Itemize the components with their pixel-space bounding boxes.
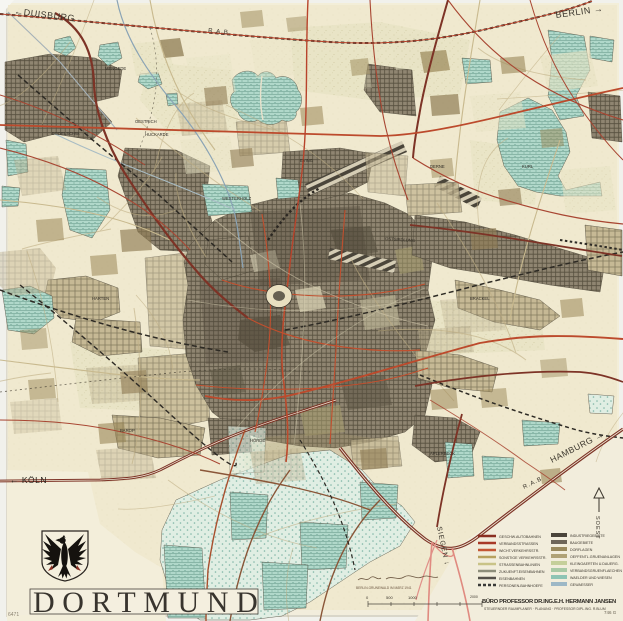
svg-text:APLERBECK: APLERBECK	[430, 451, 455, 456]
svg-text:WAELDER UND WIESEN: WAELDER UND WIESEN	[570, 576, 612, 580]
svg-text:KLEINGAERTEN U.DAUERG.: KLEINGAERTEN U.DAUERG.	[570, 562, 619, 566]
svg-text:HUCKARDE: HUCKARDE	[145, 132, 169, 137]
svg-text:← KÖLN: ← KÖLN	[10, 475, 47, 485]
svg-text:BAROP: BAROP	[120, 428, 135, 433]
svg-text:OESTRICH: OESTRICH	[135, 119, 157, 124]
svg-text:BODELSCHW.: BODELSCHW.	[52, 131, 80, 136]
svg-text:ZUKUENFT.EISENBAHNEN: ZUKUENFT.EISENBAHNEN	[499, 570, 545, 574]
svg-text:PERSONEN-BAHNHOEFE: PERSONEN-BAHNHOEFE	[499, 584, 543, 588]
svg-text:KURL: KURL	[522, 164, 534, 169]
svg-text:2000: 2000	[470, 595, 478, 599]
svg-text:BERLIN-GRUNEWALD IM MÄRZ 1941: BERLIN-GRUNEWALD IM MÄRZ 1941	[356, 586, 412, 590]
svg-text:VERBANDSSTRASSEN: VERBANDSSTRASSEN	[499, 542, 539, 546]
svg-text:BRACKEL: BRACKEL	[470, 296, 490, 301]
svg-text:500: 500	[386, 595, 393, 600]
svg-text:HARTEN: HARTEN	[92, 296, 109, 301]
svg-text:VERBANDSGRUENFLAECHEN: VERBANDSGRUENFLAECHEN	[570, 569, 622, 573]
svg-text:EVING: EVING	[300, 158, 313, 163]
svg-text:SONSTIGE VERKEHRSSTR.: SONSTIGE VERKEHRSSTR.	[499, 556, 547, 560]
svg-text:MENGEDE: MENGEDE	[105, 66, 126, 71]
svg-text:GESCHW.AUTOBAHNEN: GESCHW.AUTOBAHNEN	[499, 535, 541, 539]
svg-text:WESTERHOLZ: WESTERHOLZ	[222, 196, 252, 201]
svg-text:STRASSENBAHNLINIEN: STRASSENBAHNLINIEN	[499, 563, 540, 567]
svg-text:OEFFENTL.GRUENANLAGEN: OEFFENTL.GRUENANLAGEN	[570, 555, 620, 559]
svg-text:BAUGEBIETE: BAUGEBIETE	[570, 541, 594, 545]
svg-text:DORFLAGEN: DORFLAGEN	[570, 548, 593, 552]
svg-text:INDUSTRIEGEBIETE: INDUSTRIEGEBIETE	[570, 534, 606, 538]
svg-text:DORTMUND: DORTMUND	[33, 586, 265, 619]
svg-text:1000: 1000	[408, 595, 418, 600]
svg-text:6471: 6471	[8, 612, 19, 618]
svg-text:HÖRDE: HÖRDE	[250, 438, 265, 443]
svg-text:DERNE: DERNE	[430, 164, 445, 169]
svg-text:STEUERNDER RAUMPLANER · PLANUN: STEUERNDER RAUMPLANER · PLANUNG · PROFES…	[484, 607, 606, 611]
svg-text:746 G: 746 G	[604, 610, 617, 615]
svg-text:EISENBAHNEN: EISENBAHNEN	[499, 577, 525, 581]
svg-text:GEWAESSER: GEWAESSER	[570, 583, 593, 587]
svg-text:WICHT.VERKEHRSSTR.: WICHT.VERKEHRSSTR.	[499, 549, 539, 553]
svg-text:BÜRO PROFESSOR DR.ING.E.H. HER: BÜRO PROFESSOR DR.ING.E.H. HERMANN JANSE…	[482, 598, 616, 605]
